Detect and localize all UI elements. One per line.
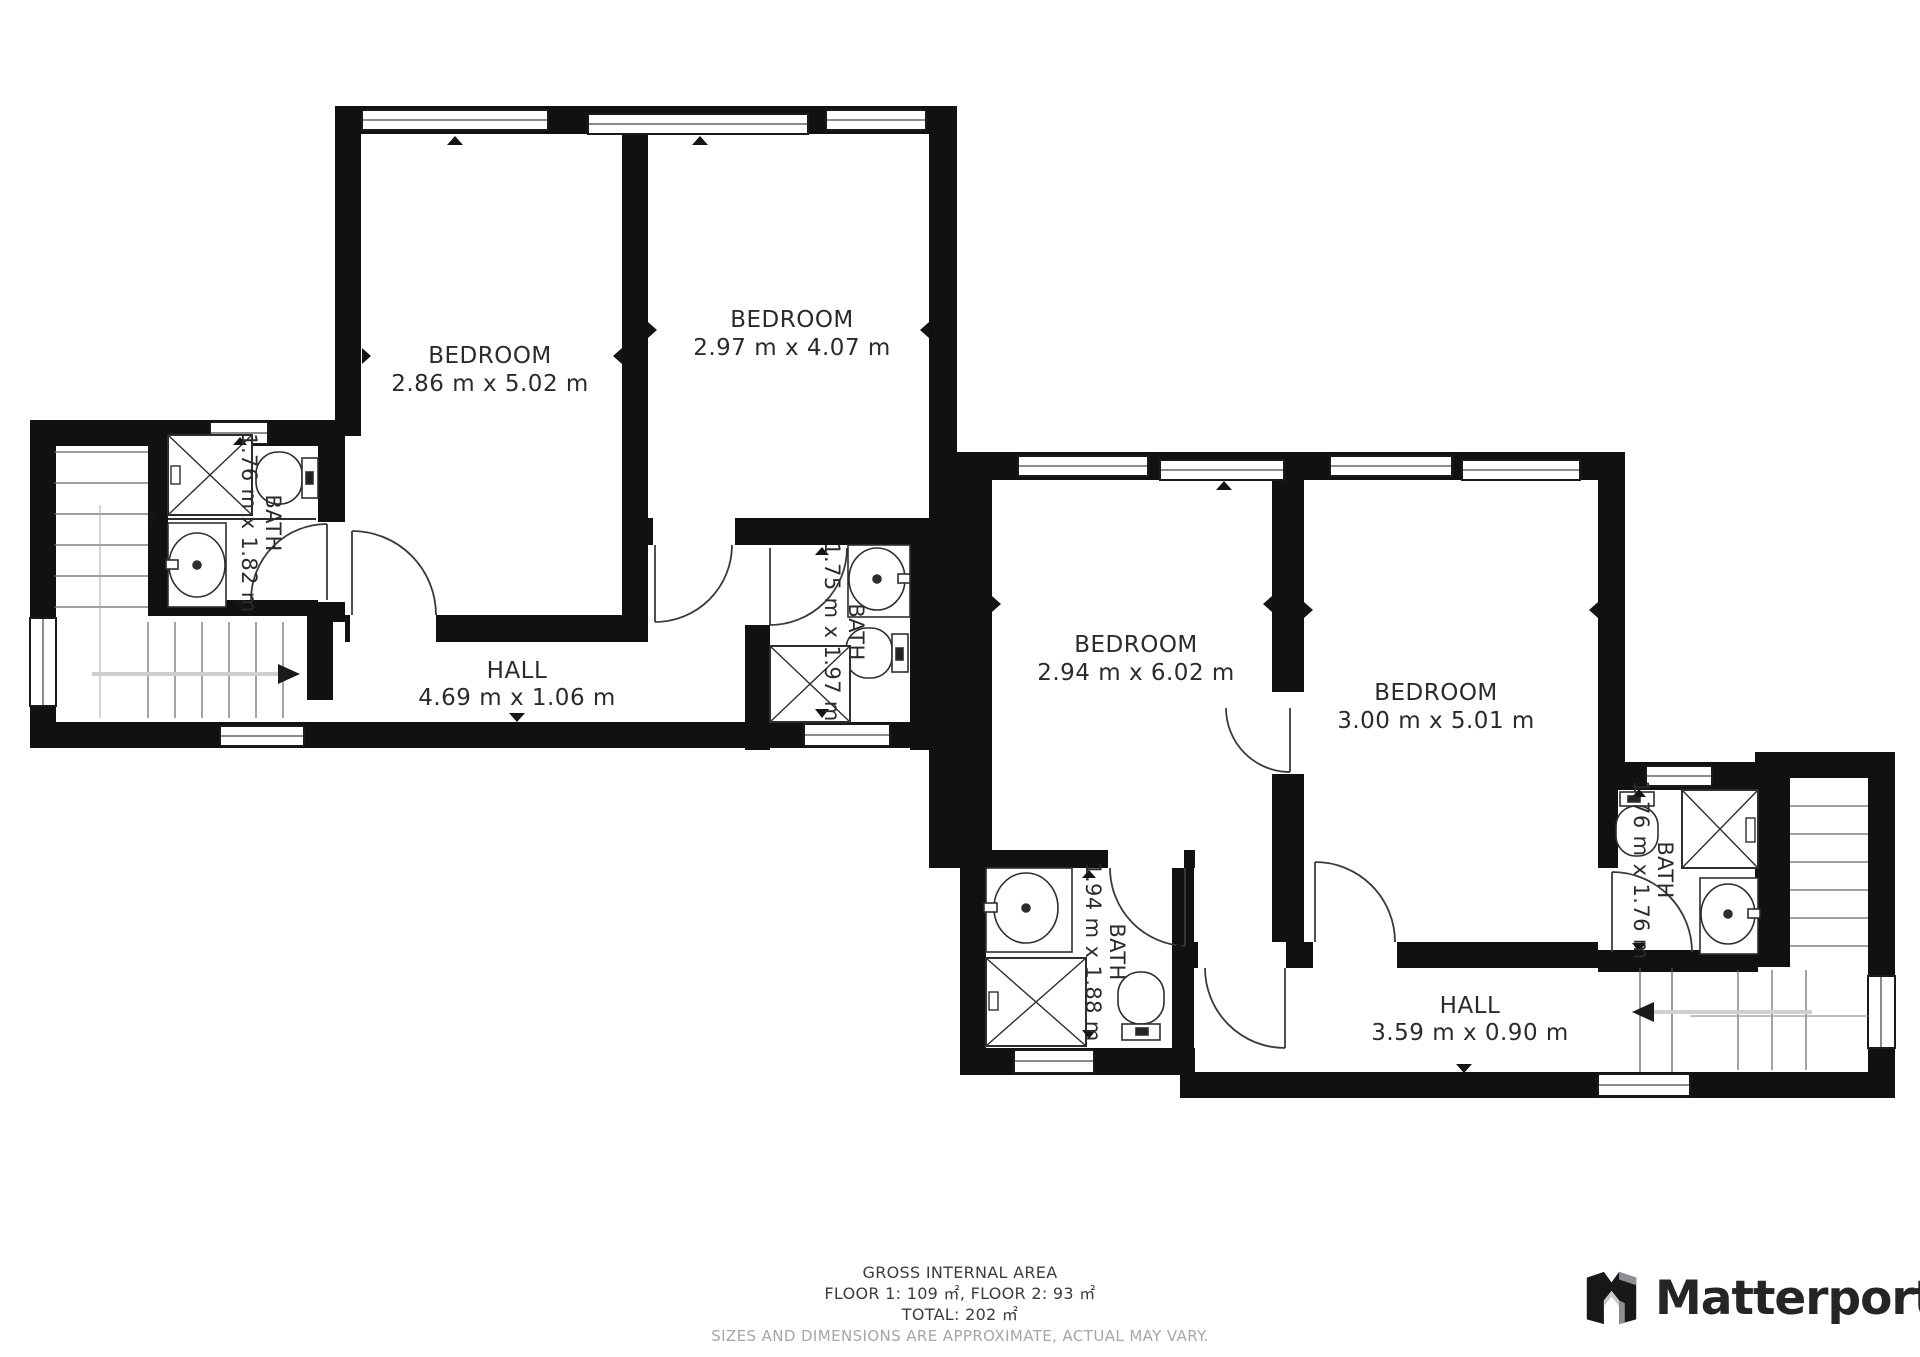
room-dimensions: 3.59 m x 0.90 m: [1371, 1020, 1569, 1046]
matterport-m-icon: [1583, 1270, 1640, 1327]
sink-icon: [1700, 878, 1760, 954]
floor-plan-canvas: BEDROOM 2.86 m x 5.02 m BEDROOM 2.97 m x…: [0, 0, 1920, 1357]
room-name: BEDROOM: [428, 343, 552, 369]
room-hall-1: HALL 4.69 m x 1.06 m: [418, 658, 616, 711]
room-dimensions: 4.69 m x 1.06 m: [418, 685, 616, 711]
room-dimensions: 2.97 m x 4.07 m: [693, 335, 891, 361]
shower-icon: [1682, 790, 1758, 868]
room-bedroom-3: BEDROOM 2.94 m x 6.02 m: [1037, 632, 1235, 686]
room-bedroom-2: BEDROOM 2.97 m x 4.07 m: [693, 307, 891, 361]
room-dimensions: 1.76 m x 1.76 m: [1629, 780, 1653, 960]
matterport-logo: Matterport: [1583, 1270, 1920, 1327]
room-name: BATH: [1653, 841, 1677, 898]
room-name: BEDROOM: [1074, 632, 1198, 658]
room-bath-4: BATH 1.76 m x 1.76 m: [1629, 780, 1677, 960]
room-dimensions: 3.00 m x 5.01 m: [1337, 708, 1535, 734]
room-dimensions: 1.75 m x 1.97 m: [820, 542, 844, 722]
room-bedroom-4: BEDROOM 3.00 m x 5.01 m: [1337, 680, 1535, 734]
sink-icon: [984, 868, 1072, 952]
room-dimensions: 2.94 m x 6.02 m: [1037, 660, 1235, 686]
room-name: BATH: [1105, 923, 1129, 980]
room-name: BATH: [261, 494, 285, 551]
shower-icon: [986, 958, 1086, 1046]
room-hall-2: HALL 3.59 m x 0.90 m: [1371, 993, 1569, 1046]
stair-direction-arrow-2: [1632, 1002, 1812, 1022]
disclaimer: SIZES AND DIMENSIONS ARE APPROXIMATE, AC…: [0, 1325, 1920, 1347]
room-name: BEDROOM: [730, 307, 854, 333]
room-dimensions: 1.94 m x 1.88 m: [1081, 862, 1105, 1042]
room-dimensions: 1.76 m x 1.82 m: [237, 433, 261, 613]
room-name: BATH: [844, 603, 868, 660]
room-name: HALL: [487, 658, 548, 684]
room-dimensions: 2.86 m x 5.02 m: [391, 371, 589, 397]
logo-wordmark: Matterport: [1655, 1271, 1920, 1326]
room-name: HALL: [1440, 993, 1501, 1019]
floor-plan-page: BEDROOM 2.86 m x 5.02 m BEDROOM 2.97 m x…: [0, 0, 1920, 1357]
sink-icon: [166, 523, 226, 607]
room-name: BEDROOM: [1374, 680, 1498, 706]
bath3-fixtures: [984, 868, 1164, 1046]
stair-direction-arrow-1: [92, 664, 300, 684]
room-bedroom-1: BEDROOM 2.86 m x 5.02 m: [391, 343, 589, 397]
toilet-icon: [1118, 972, 1164, 1040]
